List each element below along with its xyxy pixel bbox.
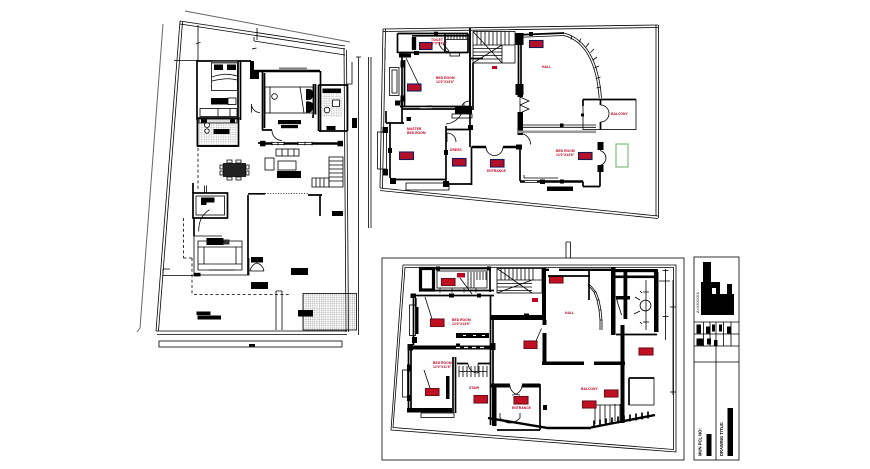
svg-text:MUN PCL NO:: MUN PCL NO:	[698, 428, 703, 456]
svg-text:ENTRANCE: ENTRANCE	[512, 406, 532, 410]
svg-text:12'0"X13'6": 12'0"X13'6"	[436, 80, 455, 84]
svg-text:ENTRANCE: ENTRANCE	[487, 169, 507, 173]
svg-text:STAIR: STAIR	[469, 386, 479, 390]
svg-text:DRAWING TITLE:: DRAWING TITLE:	[719, 422, 724, 456]
svg-text:BALCONY: BALCONY	[611, 112, 629, 116]
svg-text:A=XXXXXX: A=XXXXXX	[695, 292, 700, 313]
svg-text:DRESS: DRESS	[450, 148, 462, 152]
svg-text:HALL: HALL	[542, 65, 551, 69]
svg-text:HALL: HALL	[565, 311, 574, 315]
svg-text:12'0"X13'6": 12'0"X13'6"	[452, 322, 471, 326]
svg-text:BALCONY: BALCONY	[581, 387, 599, 391]
svg-text:12'0"X11'6": 12'0"X11'6"	[433, 365, 452, 369]
svg-text:BED ROOM: BED ROOM	[407, 131, 426, 135]
svg-text:12'0"X13'6": 12'0"X13'6"	[556, 153, 575, 157]
